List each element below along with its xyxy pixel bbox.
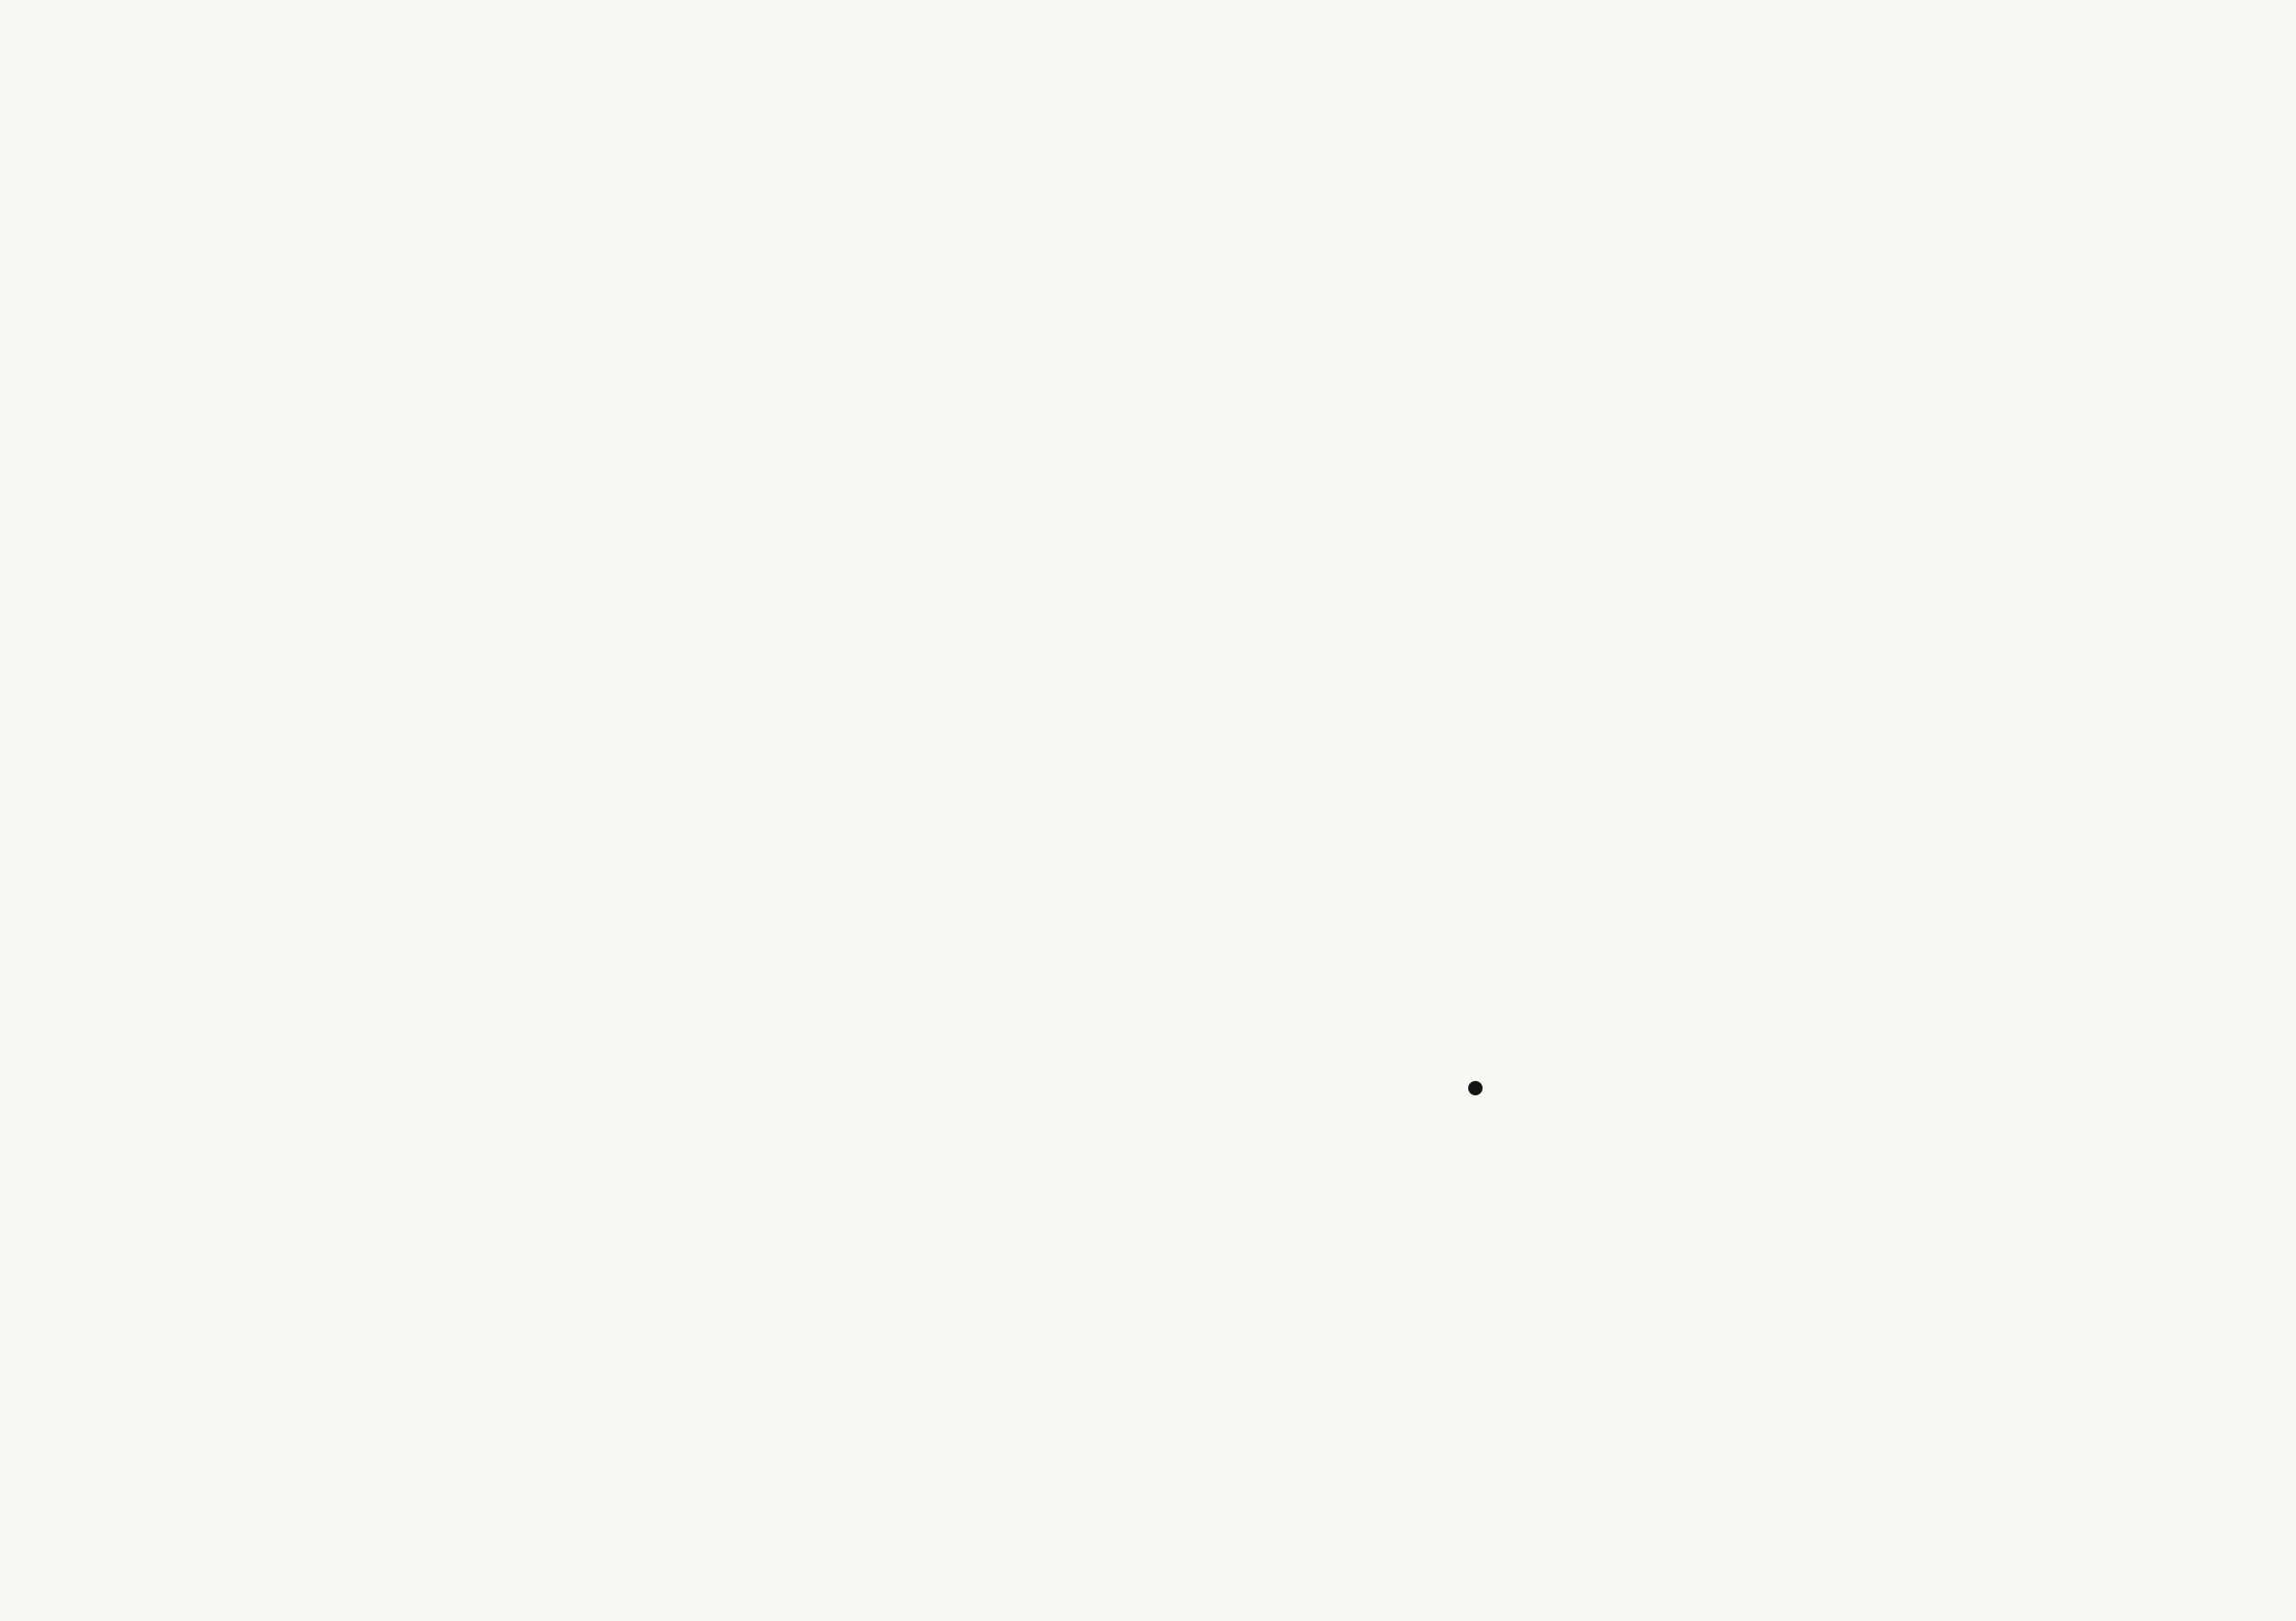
up-start-dot xyxy=(1468,1081,1483,1095)
stairs-and-elevator xyxy=(1468,1081,1483,1095)
floor-plan-canvas xyxy=(0,0,2296,1621)
